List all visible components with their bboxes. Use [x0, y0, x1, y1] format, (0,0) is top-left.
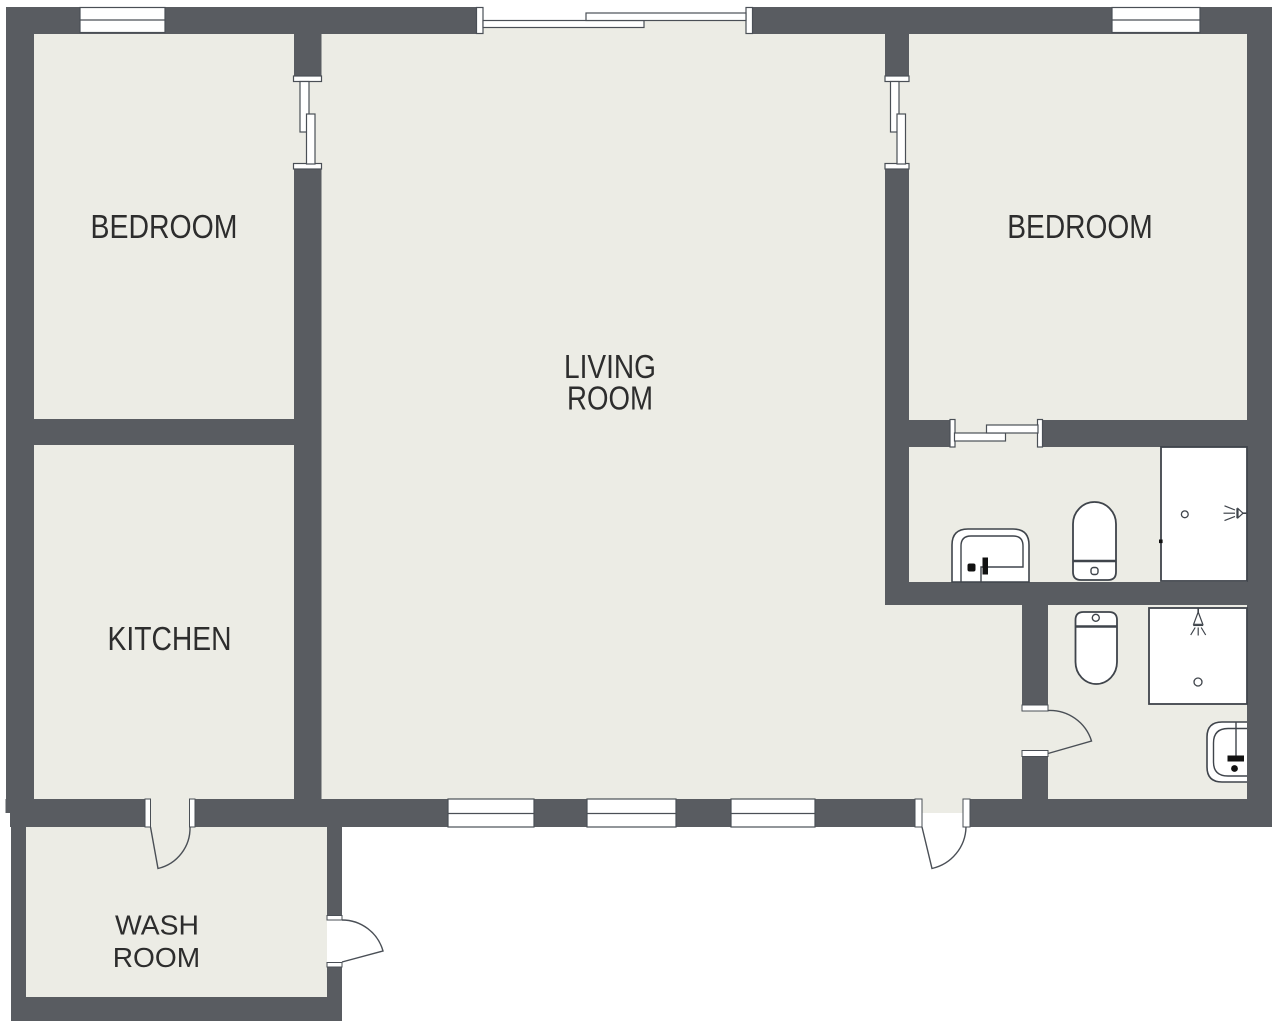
svg-text:ROOM: ROOM	[113, 942, 201, 973]
svg-text:BEDROOM: BEDROOM	[1007, 208, 1153, 245]
svg-text:ROOM: ROOM	[567, 380, 653, 417]
svg-text:BEDROOM: BEDROOM	[91, 208, 238, 245]
svg-text:KITCHEN: KITCHEN	[108, 620, 232, 657]
svg-text:WASH: WASH	[115, 910, 199, 941]
